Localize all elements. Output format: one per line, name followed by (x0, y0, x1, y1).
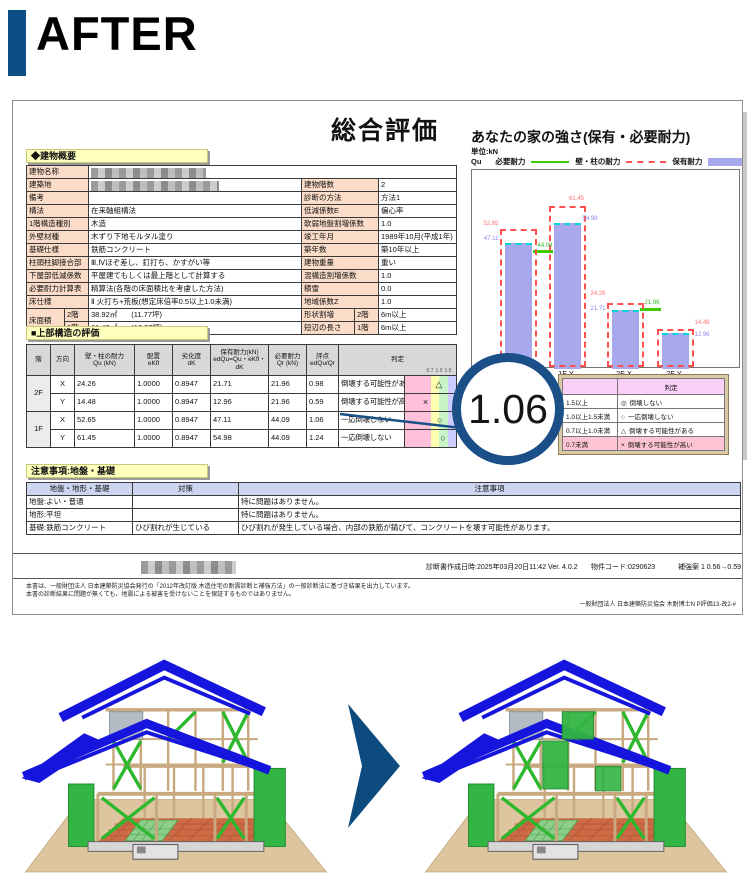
house-before-image (8, 648, 340, 880)
judgment-mark: △ (435, 379, 442, 390)
notes-table: 地盤・地形・基礎対策注意事項地盤:よい・普通特に問題はありません。地形:平坦特に… (26, 482, 741, 535)
redacted-value (91, 168, 206, 178)
bar-chart: 52.6547.1144.0961.4554.9824.2621.7121.96… (471, 169, 740, 368)
chart-legend: Qu 必要耐力 壁・柱の耐力 保有耐力 (471, 156, 743, 167)
score-value: 1.06 (468, 386, 548, 433)
bar-value-label: 21.71 (576, 306, 606, 312)
scale-tick: 1.0 (436, 369, 443, 375)
field-value-text: 精算法(各階の床面積比を考慮した方法) (91, 284, 224, 293)
report-title: 総合評価 (331, 111, 439, 147)
legend-need-label: 必要耐力 (495, 156, 525, 167)
legend-range: 1.0以上1.5未満 (563, 409, 618, 423)
field-label-right: 建物階数 (302, 179, 379, 192)
scale-tick: 1.5 (445, 369, 452, 375)
bar-value-label: 12.96 (695, 332, 725, 338)
need-value-label: 21.96 (645, 300, 675, 306)
field-label: 外壁材種 (27, 231, 89, 244)
section-building-overview: ◆建物概要 (26, 149, 208, 163)
legend-mark: ◎ (621, 400, 627, 407)
area-tsubo: (11.77坪) (131, 310, 162, 319)
score-bands: △ (405, 376, 456, 393)
field-value-right: 6m以上 (379, 309, 457, 322)
direction-cell: Y (51, 394, 75, 412)
wall-capacity-outline (657, 329, 694, 367)
ekfl-cell: 1.0000 (135, 412, 173, 430)
band-pink (405, 430, 431, 447)
legend-header-row: 判定 (563, 379, 725, 395)
field-value-text: Ⅲ,Ⅳほぞ差し、釘打ち、かすがい等 (91, 258, 210, 267)
edqu-cell: 47.11 (211, 412, 269, 430)
house-after-image (408, 648, 740, 880)
notes-column-header: 対策 (133, 483, 239, 496)
dk-cell: 0.8947 (173, 412, 211, 430)
judgment-band-cell: ○ (405, 430, 457, 448)
notes-cell: 基礎:鉄筋コンクリート (27, 522, 133, 535)
column-header: 評点 edQu/Qr (307, 345, 339, 376)
field-value (89, 192, 302, 205)
legend-row: 0.7未満×倒壊する可能性が高い (563, 437, 725, 451)
direction-cell: X (51, 376, 75, 394)
legend-wall-dash-swatch (626, 161, 666, 163)
field-label: 構法 (27, 205, 89, 218)
field-value (89, 179, 302, 192)
bar-value-label: 54.98 (583, 216, 613, 222)
sheet-edge-shadow (743, 112, 747, 460)
upper-structure-row: 2FX24.261.00000.894721.7121.960.98倒壊する可能… (27, 376, 457, 394)
notes-cell: ひび割れが生じている (133, 522, 239, 535)
field-value: 鉄筋コンクリート (89, 244, 302, 257)
column-header: 配置 eKfl (135, 345, 173, 376)
overview-row: 柱頭柱脚接合部Ⅲ,Ⅳほぞ差し、釘打ち、かすがい等建物重量重い (27, 257, 457, 270)
field-value-text: 在来軸組構法 (91, 206, 136, 215)
field-label: 1階構造種別 (27, 218, 89, 231)
legend-holding-label: 保有耐力 (672, 156, 702, 167)
legend-mark: △ (621, 428, 626, 435)
legend-row: 1.5以上◎倒壊しない (563, 395, 725, 409)
field-value-right: 築10年以上 (379, 244, 457, 257)
notes-cell (133, 509, 239, 522)
field-value: Ⅱ 火打ち+荒板(想定床倍率0.5以上1.0未満) (89, 296, 302, 309)
field-sublabel-right: 2階 (355, 309, 379, 322)
column-header: 保有耐力(kN) edQu=Qu・eKfl・dK (211, 345, 269, 376)
upper-structure-row: Y61.451.00000.894754.9844.091.24一応倒壊しない○ (27, 430, 457, 448)
overview-row: 1階構造種別木造軟弱地盤割増係数1.0 (27, 218, 457, 231)
legend-text: 倒壊する可能性が高い (628, 442, 693, 449)
band-yellow (431, 430, 440, 447)
field-value-text: Ⅱ 火打ち+荒板(想定床倍率0.5以上1.0未満) (91, 297, 232, 306)
column-header: 必要耐力 Qr (kN) (269, 345, 307, 376)
band-yellow (431, 394, 440, 411)
notes-row: 基礎:鉄筋コンクリートひび割れが生じているひび割れが発生している場合、内部の鉄筋… (27, 522, 741, 535)
page: AFTER 総合評価 あなたの家の強さ(保有・必要耐力) 単位:kN Qu 必要… (0, 0, 750, 889)
legend-judgment: ◎倒壊しない (618, 395, 725, 409)
legend-row: 0.7以上1.0未満△倒壊する可能性がある (563, 423, 725, 437)
field-label-right: 低減係数E (302, 205, 379, 218)
notes-cell: 地盤:よい・普通 (27, 496, 133, 509)
legend-need-line-swatch (531, 161, 569, 163)
qu-cell: 52.65 (75, 412, 135, 430)
field-label-right: 形状割増 (302, 309, 355, 322)
field-value: 木ずり下地モルタル塗り (89, 231, 302, 244)
overview-row: 下屋部低減係数平屋建てもしくは最上階として計算する混構造割増係数1.0 (27, 270, 457, 283)
score-cell: 1.24 (307, 430, 339, 448)
qr-cell: 21.96 (269, 376, 307, 394)
field-label-right: 地域係数Z (302, 296, 379, 309)
building-overview-table: 建物名称建築地建物階数2備考診断の方法方法1構法在来軸組構法低減係数E偏心率1階… (26, 165, 457, 335)
legend-mark: × (621, 442, 625, 449)
judgment-text-cell: 倒壊する可能性が高い (339, 394, 405, 412)
judgment-text-cell: 一応倒壊しない (339, 430, 405, 448)
score-scale-ticks: 0.71.01.5 (404, 368, 456, 375)
judgment-band-cell: × (405, 394, 457, 412)
bar-value-label: 47.11 (469, 236, 499, 242)
score-bands: ○ (405, 430, 456, 447)
field-value: 38.92㎡(11.77坪) (89, 309, 302, 322)
field-value: 精算法(各階の床面積比を考慮した方法) (89, 283, 302, 296)
field-label-right: 軟弱地盤割増係数 (302, 218, 379, 231)
field-value-text: 木ずり下地モルタル塗り (91, 232, 174, 241)
field-value-right: 1.0 (379, 270, 457, 283)
overview-row: 必要耐力計算表精算法(各階の床面積比を考慮した方法)積雪0.0 (27, 283, 457, 296)
field-label-right: 混構造割増係数 (302, 270, 379, 283)
legend-mark: ○ (621, 414, 625, 421)
chart-title: あなたの家の強さ(保有・必要耐力) (471, 127, 690, 147)
column-header: 判定0.71.01.5 (339, 345, 457, 376)
dk-cell: 0.8947 (173, 376, 211, 394)
judgment-text-cell: 一応倒壊しない (339, 412, 405, 430)
dk-cell: 0.8947 (173, 430, 211, 448)
legend-text: 倒壊する可能性がある (629, 428, 694, 435)
notes-cell: 特に問題はありません。 (239, 509, 741, 522)
notes-cell (133, 496, 239, 509)
band-pink (405, 376, 431, 393)
field-value: 在来軸組構法 (89, 205, 302, 218)
notes-header-row: 地盤・地形・基礎対策注意事項 (27, 483, 741, 496)
field-label-right: 竣工年月 (302, 231, 379, 244)
field-value-right: 6m以上 (379, 322, 457, 335)
section-notes: 注意事項:地盤・基礎 (26, 464, 208, 478)
legend-text: 倒壊しない (630, 400, 663, 407)
field-value-right: 1989年10月(平成1年) (379, 231, 457, 244)
score-badge: 1.06 (452, 353, 564, 465)
reinforcement-plan: 補強案 1 0.56→0.59 (678, 562, 741, 572)
score-cell: 0.59 (307, 394, 339, 412)
overview-row: 構法在来軸組構法低減係数E偏心率 (27, 205, 457, 218)
upper-structure-row: 1FX52.651.00000.894747.1144.091.06一応倒壊しな… (27, 412, 457, 430)
disclaimer-line-2: 本書の診断結果に問題が無くても、地震による被害を受けないことを保証するものではあ… (26, 589, 295, 598)
field-label: 備考 (27, 192, 89, 205)
direction-cell: X (51, 412, 75, 430)
column-header: 劣化度 dK (173, 345, 211, 376)
score-cell: 0.98 (307, 376, 339, 394)
qu-cell: 24.26 (75, 376, 135, 394)
field-value-text: 木造 (91, 219, 106, 228)
field-value: 平屋建てもしくは最上階として計算する (89, 270, 302, 283)
field-value-right: 偏心率 (379, 205, 457, 218)
band-lavender (448, 430, 456, 447)
field-label-right: 建物重量 (302, 257, 379, 270)
ekfl-cell: 1.0000 (135, 376, 173, 394)
legend-wall-label: 壁・柱の耐力 (575, 156, 620, 167)
notes-column-header: 地盤・地形・基礎 (27, 483, 133, 496)
edqu-cell: 21.71 (211, 376, 269, 394)
field-value (89, 166, 457, 179)
field-label: 柱頭柱脚接合部 (27, 257, 89, 270)
judgment-mark: × (423, 397, 428, 408)
qu-cell: 14.48 (75, 394, 135, 412)
field-value-right: 0.0 (379, 283, 457, 296)
edqu-cell: 54.98 (211, 430, 269, 448)
column-header: 階 (27, 345, 51, 376)
score-bands: ○ (405, 412, 456, 429)
overview-row: 床仕様Ⅱ 火打ち+荒板(想定床倍率0.5以上1.0未満)地域係数Z1.0 (27, 296, 457, 309)
upper-structure-header-row: 階方向壁・柱の耐力 Qu (kN)配置 eKfl劣化度 dK保有耐力(kN) e… (27, 345, 457, 376)
dk-cell: 0.8947 (173, 394, 211, 412)
report-created-timestamp: 診断書作成日時:2025年03月20日11:42 Ver. 4.0.2 (426, 562, 578, 572)
field-label-right: 積雪 (302, 283, 379, 296)
judgment-legend: 判定1.5以上◎倒壊しない1.0以上1.5未満○一応倒壊しない0.7以上1.0未… (558, 374, 729, 455)
legend-judgment: ○一応倒壊しない (618, 409, 725, 423)
upper-structure-table: 階方向壁・柱の耐力 Qu (kN)配置 eKfl劣化度 dK保有耐力(kN) e… (26, 344, 457, 448)
judgment-header-label: 判定 (391, 356, 404, 363)
legend-range: 0.7未満 (563, 437, 618, 451)
field-label-right: 短辺の長さ (302, 322, 355, 335)
judgment-mark: ○ (440, 433, 445, 444)
field-value-right: 方法1 (379, 192, 457, 205)
transition-arrow-icon (346, 700, 402, 832)
judgment-text-cell: 倒壊する可能性がある (339, 376, 405, 394)
judgment-mark: ○ (437, 415, 442, 426)
overview-row: 床面積2階38.92㎡(11.77坪)形状割増2階6m以上 (27, 309, 457, 322)
notes-column-header: 注意事項 (239, 483, 741, 496)
band-pink (405, 412, 431, 429)
field-value-right: 1.0 (379, 218, 457, 231)
qr-cell: 21.96 (269, 394, 307, 412)
field-label: 建物名称 (27, 166, 89, 179)
field-label-right: 診断の方法 (302, 192, 379, 205)
section-upper-structure: ■上部構造の評価 (26, 326, 208, 340)
field-label: 下屋部低減係数 (27, 270, 89, 283)
overview-row: 建築地建物階数2 (27, 179, 457, 192)
column-header: 壁・柱の耐力 Qu (kN) (75, 345, 135, 376)
report-sheet: 総合評価 あなたの家の強さ(保有・必要耐力) 単位:kN Qu 必要耐力 壁・柱… (12, 100, 743, 615)
qr-cell: 44.09 (269, 412, 307, 430)
field-value-right: 2 (379, 179, 457, 192)
wall-value-label: 14.48 (695, 320, 725, 326)
scale-tick: 0.7 (427, 369, 434, 375)
issuer-credit: 一般財団法人 日本建築防災協会 木耐博士N P評価13-改2-# (579, 599, 736, 608)
legend-range: 1.5以上 (563, 395, 618, 409)
field-value-right: 重い (379, 257, 457, 270)
legend-corner (563, 379, 618, 395)
redacted-company-block (141, 561, 236, 574)
band-green (439, 394, 448, 411)
notes-cell: 地形:平坦 (27, 509, 133, 522)
score-cell: 1.06 (307, 412, 339, 430)
footer-divider-top (13, 553, 742, 554)
edqu-cell: 12.96 (211, 394, 269, 412)
field-value-text: 平屋建てもしくは最上階として計算する (91, 271, 225, 280)
legend-holding-bar-swatch (708, 158, 742, 166)
field-sublabel-right: 1階 (355, 322, 379, 335)
column-header: 方向 (51, 345, 75, 376)
wall-capacity-outline (549, 206, 586, 367)
after-label: AFTER (36, 6, 198, 61)
floor-cell: 1F (27, 412, 51, 448)
legend-judgment: △倒壊する可能性がある (618, 423, 725, 437)
need-value-label: 44.09 (538, 243, 568, 249)
redacted-value (91, 181, 219, 191)
notes-row: 地形:平坦特に問題はありません。 (27, 509, 741, 522)
field-value: Ⅲ,Ⅳほぞ差し、釘打ち、かすがい等 (89, 257, 302, 270)
field-label: 建築地 (27, 179, 89, 192)
legend-judgment: ×倒壊する可能性が高い (618, 437, 725, 451)
ekfl-cell: 1.0000 (135, 430, 173, 448)
wall-capacity-outline (607, 303, 644, 367)
score-bands: × (405, 394, 456, 411)
overview-row: 基礎仕様鉄筋コンクリート築年数築10年以上 (27, 244, 457, 257)
wall-value-label: 24.26 (576, 291, 606, 297)
legend-range: 0.7以上1.0未満 (563, 423, 618, 437)
after-accent-bar (8, 10, 26, 76)
overview-row: 備考診断の方法方法1 (27, 192, 457, 205)
field-value: 木造 (89, 218, 302, 231)
chart-qu-symbol: Qu (471, 157, 481, 166)
field-sublabel: 2階 (65, 309, 89, 322)
area-value: 38.92㎡ (91, 310, 117, 319)
notes-cell: ひび割れが発生している場合、内部の鉄筋が錆びて、コンクリートを壊す可能性がありま… (239, 522, 741, 535)
wall-capacity-outline (500, 229, 537, 367)
field-label: 床仕様 (27, 296, 89, 309)
property-code: 物件コード:0290623 (591, 562, 655, 572)
legend-header: 判定 (618, 379, 725, 395)
upper-structure-row: Y14.481.00000.894712.9621.960.59倒壊する可能性が… (27, 394, 457, 412)
qr-cell: 44.09 (269, 430, 307, 448)
legend-text: 一応倒壊しない (628, 414, 674, 421)
field-value-right: 1.0 (379, 296, 457, 309)
overview-row: 建物名称 (27, 166, 457, 179)
overview-row: 外壁材種木ずり下地モルタル塗り竣工年月1989年10月(平成1年) (27, 231, 457, 244)
floor-cell: 2F (27, 376, 51, 412)
direction-cell: Y (51, 430, 75, 448)
judgment-band-cell: ○ (405, 412, 457, 430)
wall-value-label: 61.45 (569, 196, 599, 202)
notes-row: 地盤:よい・普通特に問題はありません。 (27, 496, 741, 509)
ekfl-cell: 1.0000 (135, 394, 173, 412)
field-label: 基礎仕様 (27, 244, 89, 257)
field-label: 必要耐力計算表 (27, 283, 89, 296)
footer-divider-bottom (13, 578, 742, 579)
judgment-band-cell: △ (405, 376, 457, 394)
legend-row: 1.0以上1.5未満○一応倒壊しない (563, 409, 725, 423)
field-label-right: 築年数 (302, 244, 379, 257)
notes-cell: 特に問題はありません。 (239, 496, 741, 509)
qu-cell: 61.45 (75, 430, 135, 448)
wall-value-label: 52.65 (469, 221, 499, 227)
field-value-text: 鉄筋コンクリート (91, 245, 151, 254)
